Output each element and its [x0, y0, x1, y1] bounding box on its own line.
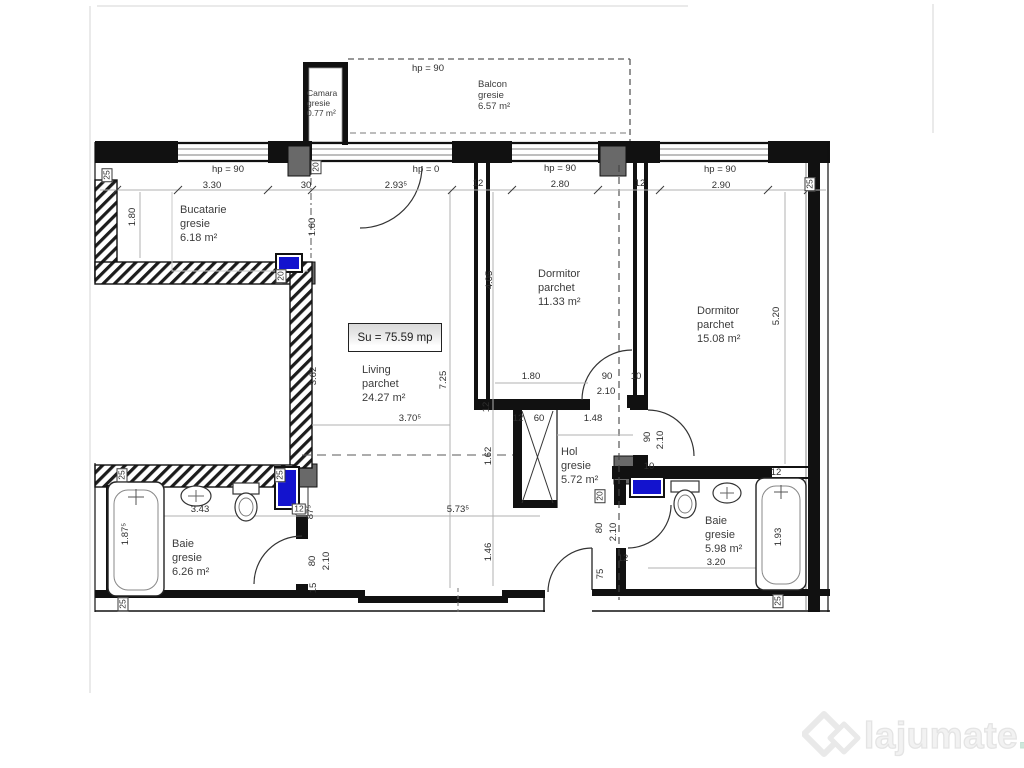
dimension-label: 3.43: [191, 505, 210, 515]
dimension-label: 1.48: [584, 414, 603, 424]
dimension-label: 7.25: [439, 371, 449, 390]
dimension-label: 12: [473, 179, 484, 189]
dimension-label: 2.10: [609, 523, 619, 542]
dimension-label: 2.80: [551, 180, 570, 190]
watermark-text: lajumate.ro: [864, 710, 1024, 762]
dimension-label: 25: [275, 468, 286, 482]
dimension-label: 20: [276, 269, 287, 283]
dimension-label: 15: [309, 583, 319, 594]
dimension-label: 3.20: [707, 558, 726, 568]
dimension-label: hp = 90: [412, 64, 444, 74]
dimension-label: hp = 0: [413, 165, 440, 175]
dimension-label: 90: [643, 432, 653, 443]
dimension-label: 12: [513, 414, 524, 424]
floorplan-page: Camaragresie0.77 m²Balcongresie6.57 m²Bu…: [0, 0, 1024, 768]
dimension-label: 25: [805, 177, 816, 191]
right-wall: [808, 163, 820, 612]
dimension-label: 1.60: [308, 218, 318, 237]
floorplan-drawing: [0, 0, 1024, 768]
watermark-logo-icon: [802, 710, 864, 762]
dimension-label: hp = 90: [704, 165, 736, 175]
dimension-label: hp = 90: [544, 164, 576, 174]
dimension-label: 87⁵: [306, 505, 316, 520]
dimension-label: 2.90: [712, 181, 731, 191]
entrance-door-arc: [548, 548, 592, 592]
dimension-label: 25: [117, 468, 128, 482]
dimension-label: 5.20: [772, 307, 782, 326]
dimension-label: 2.10: [656, 431, 666, 450]
dimension-label: 12: [771, 468, 782, 478]
dimension-label: 80: [308, 556, 318, 567]
dimension-label: 30: [301, 181, 312, 191]
room-label-baie-1: Baiegresie6.26 m²: [172, 537, 209, 579]
room-label-camara: Camaragresie0.77 m²: [307, 88, 337, 118]
dimension-label: 80: [595, 523, 605, 534]
watermark-tld: .ro: [1018, 715, 1024, 756]
room-label-balcon: Balcongresie6.57 m²: [478, 79, 510, 112]
room-label-dormitor-1: Dormitorparchet11.33 m²: [538, 267, 581, 309]
balcony-door-arc: [360, 166, 422, 228]
baie2-door-arc: [628, 505, 671, 548]
dimension-label: 20: [595, 489, 606, 503]
dimension-label: 20: [311, 160, 322, 174]
dimension-label: 1.80: [522, 372, 541, 382]
dimension-label: 75: [596, 569, 606, 580]
top-wall: [95, 141, 830, 163]
area-summary-box: Su = 75.59 mp: [348, 323, 442, 352]
baie1-door-arc: [254, 536, 302, 584]
dimension-label: 10: [631, 372, 642, 382]
ventilation-shaft: [513, 410, 557, 508]
toilet-icon: [233, 483, 259, 494]
dimension-label: 1.46: [484, 543, 494, 562]
dimension-label: 12: [618, 554, 629, 564]
room-label-living: Livingparchet24.27 m²: [362, 363, 405, 405]
wall-piers: [95, 141, 830, 163]
dimension-label: hp = 90: [212, 165, 244, 175]
dimension-label: 1.87⁵: [121, 523, 131, 545]
dimension-label: 60: [534, 414, 545, 424]
dimension-label: 2.10: [322, 552, 332, 571]
dimension-label: 5.73⁵: [447, 505, 469, 515]
dimension-label: 2.10: [597, 387, 616, 397]
dimension-label: 12: [482, 402, 492, 413]
dimension-label: 12: [635, 179, 646, 189]
dimension-label: 10: [644, 462, 655, 472]
dimension-label: 3.30: [203, 181, 222, 191]
room-label-dormitor-2: Dormitorparchet15.08 m²: [697, 304, 740, 346]
dimension-label: 25: [773, 594, 784, 608]
dimension-label: 4.05: [485, 271, 495, 290]
dimension-label: 1.62: [484, 447, 494, 466]
dimension-label: 2.93⁵: [385, 181, 407, 191]
room-label-bucatarie: Bucatariegresie6.18 m²: [180, 203, 226, 245]
dimension-label: 1.93: [774, 528, 784, 547]
dimension-label: 1.80: [128, 208, 138, 227]
dimension-label: 25: [102, 168, 113, 182]
dimension-label: 25: [118, 597, 129, 611]
room-label-baie-2: Baiegresie5.98 m²: [705, 514, 742, 556]
room-label-hol: Holgresie5.72 m²: [561, 445, 598, 487]
concrete-pillars: [288, 146, 642, 487]
dimension-label: 3.70⁵: [399, 414, 421, 424]
watermark: lajumate.ro: [802, 710, 1024, 762]
dimension-label: 90: [602, 372, 613, 382]
area-summary-text: Su = 75.59 mp: [357, 332, 432, 344]
dimension-label: 3.62: [309, 367, 319, 386]
